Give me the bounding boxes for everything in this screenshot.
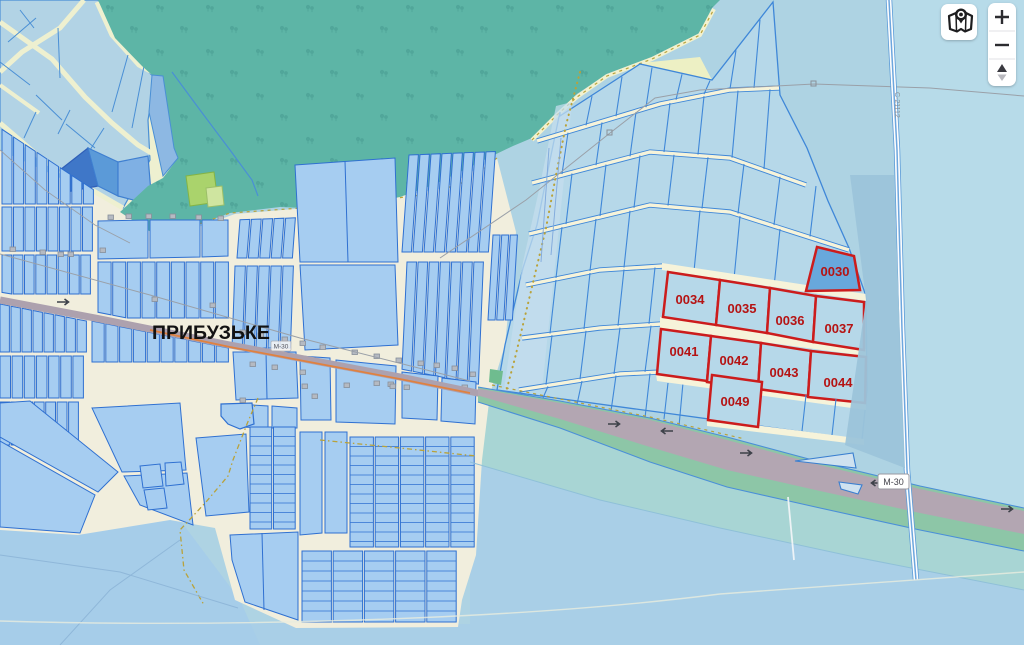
svg-text:М-30: М-30 [274, 344, 289, 351]
svg-text:0041: 0041 [670, 344, 699, 359]
svg-text:0044: 0044 [824, 375, 854, 390]
svg-text:0037: 0037 [825, 321, 854, 336]
svg-text:0030: 0030 [821, 264, 850, 279]
svg-text:С-21112: С-21112 [893, 92, 900, 118]
svg-text:М-30: М-30 [883, 477, 904, 487]
svg-text:0043: 0043 [770, 365, 799, 380]
svg-text:ПРИБУЗЬКЕ: ПРИБУЗЬКЕ [152, 322, 270, 344]
svg-text:0034: 0034 [676, 292, 706, 307]
svg-text:0036: 0036 [776, 313, 805, 328]
svg-text:0049: 0049 [721, 394, 750, 409]
svg-text:0035: 0035 [728, 301, 757, 316]
svg-text:0042: 0042 [720, 353, 749, 368]
